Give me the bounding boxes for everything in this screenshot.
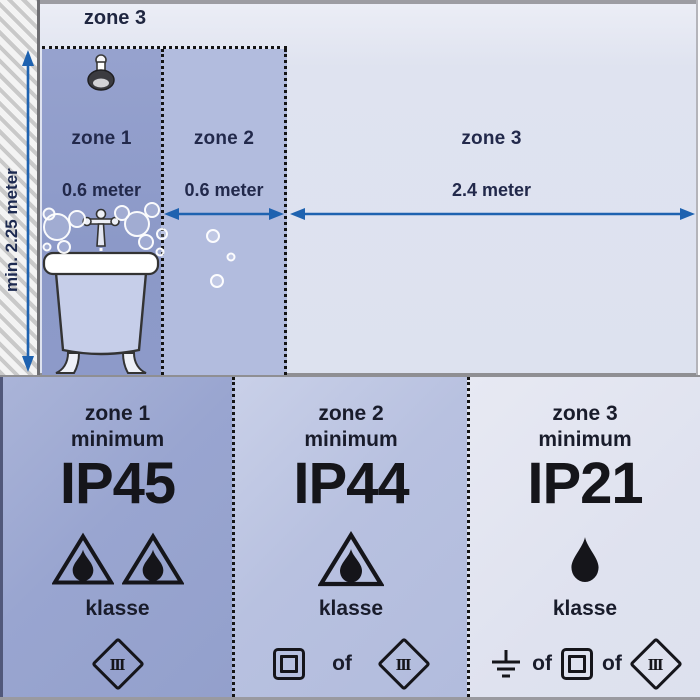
or-label: of: [332, 652, 352, 676]
bathroom-zones-infographic: zone 3 zone 1 0.6 meter zone 2 0.6 meter…: [0, 0, 700, 700]
or-label: of: [532, 652, 552, 676]
faucet-icon: [83, 210, 119, 255]
class3-numeral: III: [648, 655, 664, 672]
class3-diamond-icon: III: [377, 637, 431, 691]
panel-zone2-icon-row: [318, 527, 384, 591]
panel-zone1-icon-row: [52, 527, 184, 591]
panel-zone3-klasse-label: klasse: [553, 597, 617, 621]
panel-zone2-symbol-row: of III: [273, 637, 429, 691]
panel-zone2-ip-rating: IP44: [293, 457, 408, 511]
panel-zone2-title: zone 2: [318, 402, 383, 426]
panel-zone1-ip-rating: IP45: [60, 457, 175, 511]
class3-numeral: III: [110, 655, 126, 672]
panel-zone1: zone 1 minimum IP45 klasse III: [0, 377, 232, 697]
diagram-artwork: [0, 0, 700, 375]
bathtub-icon: [44, 253, 158, 373]
panel-zone1-title: zone 1: [85, 402, 150, 426]
panel-zone3-symbol-row: of of III: [489, 637, 681, 691]
panel-zone2-klasse-label: klasse: [319, 597, 383, 621]
class2-square-icon: [561, 648, 593, 680]
drop-icon: [569, 535, 601, 583]
panel-zone3-minimum-label: minimum: [538, 428, 631, 452]
class3-diamond-icon: III: [629, 637, 683, 691]
shower-head-icon: [88, 55, 114, 90]
panel-zone1-klasse-label: klasse: [85, 597, 149, 621]
panel-zone3: zone 3 minimum IP21 klasse of: [467, 377, 700, 697]
drop-triangle-icon: [122, 531, 184, 587]
earth-ground-icon: [489, 648, 523, 680]
panel-zone1-minimum-label: minimum: [71, 428, 164, 452]
class3-diamond-icon: III: [91, 637, 145, 691]
class3-numeral: III: [396, 655, 412, 672]
zone-diagram: zone 3 zone 1 0.6 meter zone 2 0.6 meter…: [0, 0, 700, 375]
panel-zone3-ip-rating: IP21: [527, 457, 642, 511]
class2-square-inner: [568, 655, 586, 673]
class2-square-icon: [273, 648, 305, 680]
panel-zone2: zone 2 minimum IP44 klasse of III: [232, 377, 467, 697]
drop-triangle-icon: [52, 531, 114, 587]
panel-zone3-icon-row: [569, 527, 601, 591]
panel-zone2-minimum-label: minimum: [304, 428, 397, 452]
drop-triangle-icon: [318, 529, 384, 589]
panel-zone1-symbol-row: III: [93, 637, 143, 691]
panel-zone3-title: zone 3: [552, 402, 617, 426]
ip-requirements-panels: zone 1 minimum IP45 klasse III: [0, 375, 700, 700]
class2-square-inner: [280, 655, 298, 673]
or-label: of: [602, 652, 622, 676]
